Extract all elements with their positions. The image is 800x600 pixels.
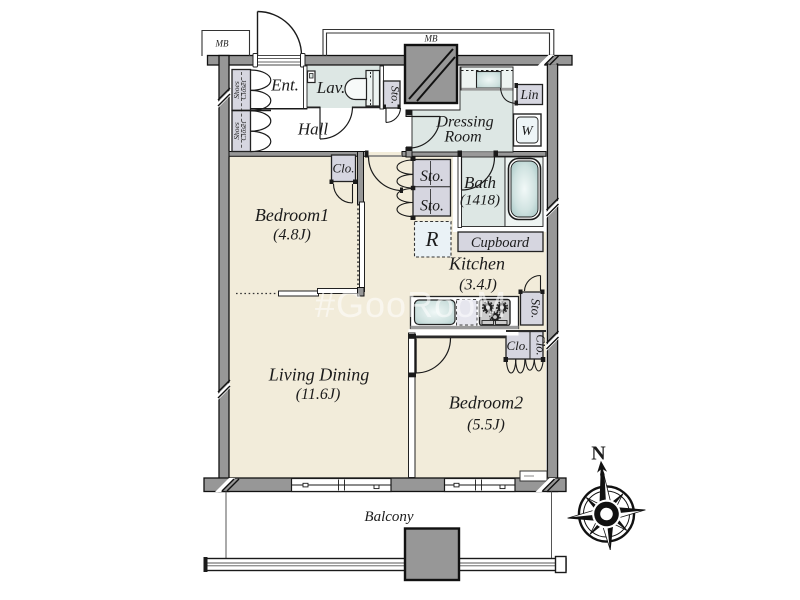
svg-text:N: N [591,443,606,465]
svg-text:Bedroom1: Bedroom1 [255,205,329,225]
svg-text:W: W [521,123,534,138]
svg-text:R: R [425,227,439,251]
svg-text:#GooRooM: #GooRooM [315,284,507,325]
svg-text:(4.8J): (4.8J) [273,227,311,244]
svg-text:Lav.: Lav. [316,78,346,97]
svg-text:Clo.: Clo. [534,334,548,355]
svg-text:MB: MB [215,39,229,49]
svg-text:MB: MB [424,34,438,44]
svg-text:Living Dining: Living Dining [268,365,370,385]
svg-text:Closet: Closet [239,121,248,141]
svg-text:Sto.: Sto. [389,86,403,104]
svg-text:Cupboard: Cupboard [471,235,530,251]
svg-text:Sto.: Sto. [529,299,544,319]
svg-text:Ent.: Ent. [270,76,299,95]
svg-text:Closet: Closet [239,80,248,100]
svg-text:Bath: Bath [464,173,496,192]
svg-text:Room: Room [443,129,481,146]
svg-text:Clo.: Clo. [332,161,354,176]
svg-text:Lin: Lin [519,87,538,102]
svg-text:Sto.: Sto. [420,198,444,215]
svg-text:(5.5J): (5.5J) [467,417,505,434]
svg-text:Bedroom2: Bedroom2 [449,393,523,413]
svg-text:Kitchen: Kitchen [448,254,505,274]
svg-text:Clo.: Clo. [506,338,528,353]
svg-text:(1418): (1418) [460,193,500,209]
svg-text:Balcony: Balcony [364,509,413,525]
svg-text:Hall: Hall [297,120,329,139]
svg-text:Sto.: Sto. [420,168,444,185]
svg-text:(11.6J): (11.6J) [296,386,341,403]
